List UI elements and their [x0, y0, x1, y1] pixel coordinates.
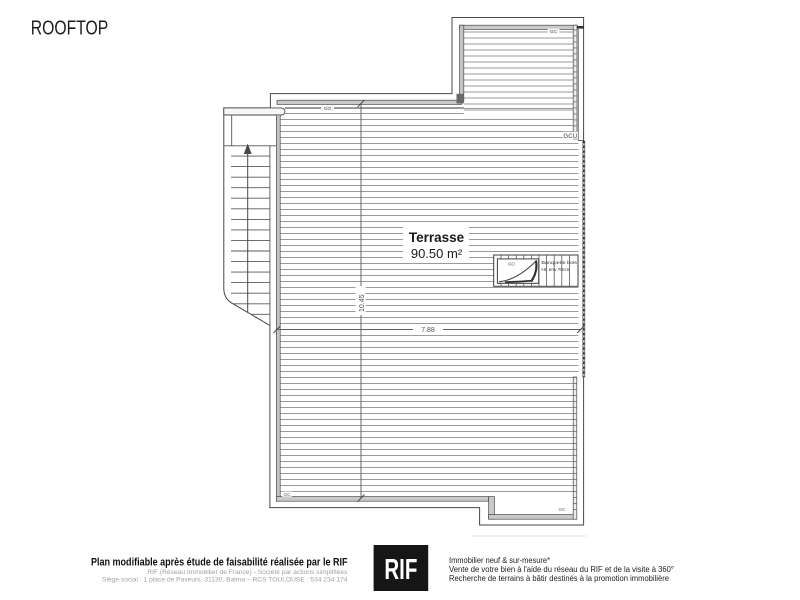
svg-text:GO: GO [508, 261, 515, 266]
svg-text:90.50 m²: 90.50 m² [411, 246, 463, 261]
svg-text:7.88: 7.88 [421, 327, 435, 334]
svg-text:GCU: GCU [563, 133, 577, 140]
svg-text:GO: GO [324, 106, 332, 111]
svg-text:GC: GC [559, 507, 567, 512]
svg-text:GC: GC [550, 29, 558, 34]
svg-text:GC: GC [284, 492, 292, 497]
svg-text:RIF (Réseau Immobilier de Fran: RIF (Réseau Immobilier de France) - Soci… [147, 569, 348, 576]
svg-text:10.45: 10.45 [359, 294, 366, 312]
svg-text:Plan modifiable après étude de: Plan modifiable après étude de faisabili… [91, 557, 348, 569]
svg-text:Banquette bois: Banquette bois [541, 260, 577, 266]
svg-text:Recherche de terrains à bâtir: Recherche de terrains à bâtir destinés à… [449, 574, 669, 583]
svg-text:ROOFTOP: ROOFTOP [31, 17, 109, 40]
svg-text:Immobilier neuf & sur-mesure*: Immobilier neuf & sur-mesure* [449, 556, 550, 565]
svg-text:RIF: RIF [384, 554, 417, 586]
svg-text:Ht. env 70cm: Ht. env 70cm [541, 267, 569, 273]
svg-text:Terrasse: Terrasse [409, 230, 465, 245]
svg-text:Vente de votre bien à l'aide d: Vente de votre bien à l'aide du réseau d… [449, 565, 674, 574]
svg-text:Siège social : 1 place de Pave: Siège social : 1 place de Paveurs, 31130… [102, 577, 348, 584]
